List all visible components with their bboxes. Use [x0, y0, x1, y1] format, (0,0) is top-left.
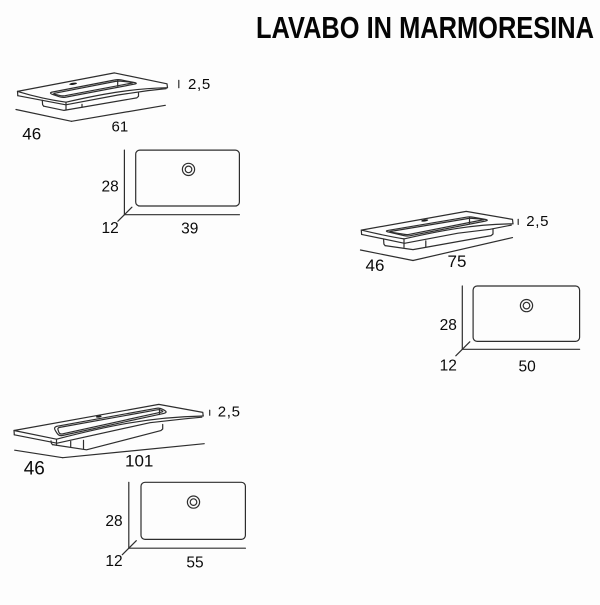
svg-text:46: 46 [22, 125, 41, 144]
svg-text:55: 55 [186, 555, 203, 572]
svg-text:28: 28 [101, 178, 118, 195]
svg-text:LAVABO IN MARMORESINA: LAVABO IN MARMORESINA [256, 11, 594, 45]
svg-text:101: 101 [125, 452, 153, 471]
svg-text:12: 12 [105, 553, 122, 570]
svg-text:12: 12 [101, 220, 118, 237]
svg-text:28: 28 [105, 513, 122, 530]
svg-text:46: 46 [366, 256, 385, 275]
svg-text:2,5: 2,5 [526, 213, 549, 230]
svg-text:61: 61 [112, 118, 129, 135]
svg-text:50: 50 [518, 359, 536, 376]
svg-text:75: 75 [448, 252, 467, 271]
svg-text:28: 28 [440, 317, 457, 334]
svg-text:2,5: 2,5 [188, 76, 211, 93]
svg-text:12: 12 [440, 358, 457, 375]
svg-text:39: 39 [181, 220, 198, 237]
svg-text:46: 46 [24, 458, 45, 479]
svg-text:2,5: 2,5 [218, 403, 241, 420]
